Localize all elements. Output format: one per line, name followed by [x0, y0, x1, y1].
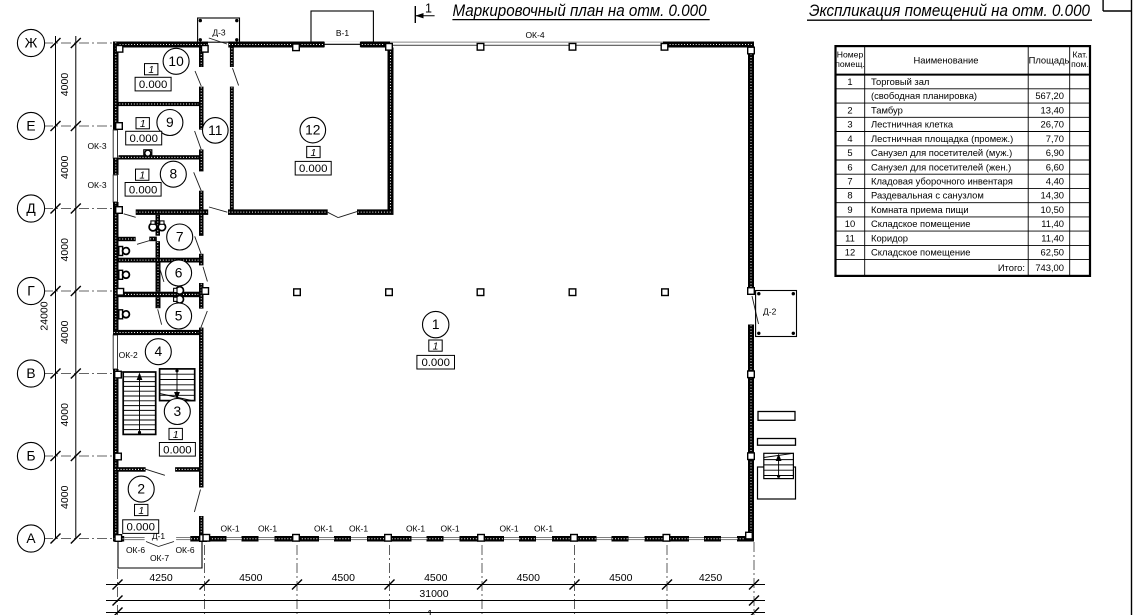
svg-text:ОК-3: ОК-3: [87, 180, 106, 190]
svg-text:Складское помещение: Складское помещение: [871, 247, 970, 258]
svg-text:4000: 4000: [59, 73, 71, 97]
svg-text:Санузел для посетителей (жен.): Санузел для посетителей (жен.): [871, 161, 1011, 172]
svg-text:(свободная планировка): (свободная планировка): [871, 90, 977, 101]
svg-text:3: 3: [173, 404, 181, 419]
svg-text:ОК-1: ОК-1: [314, 524, 333, 534]
svg-text:12: 12: [305, 123, 320, 138]
svg-text:4250: 4250: [149, 572, 173, 584]
svg-text:11: 11: [208, 123, 222, 138]
svg-text:24000: 24000: [39, 301, 51, 330]
svg-text:Е: Е: [26, 119, 35, 134]
svg-text:0.000: 0.000: [139, 79, 168, 91]
svg-text:13,40: 13,40: [1041, 104, 1064, 115]
svg-text:6: 6: [847, 161, 852, 172]
svg-text:11,40: 11,40: [1041, 232, 1064, 243]
svg-text:Лестничная площадка (промеж.): Лестничная площадка (промеж.): [871, 133, 1013, 144]
svg-text:4: 4: [847, 133, 852, 144]
svg-text:6,90: 6,90: [1046, 147, 1064, 158]
svg-text:1: 1: [427, 608, 433, 615]
svg-text:1: 1: [311, 148, 317, 159]
svg-text:0.000: 0.000: [299, 163, 328, 175]
svg-text:ОК-7: ОК-7: [150, 553, 169, 563]
svg-text:ОК-6: ОК-6: [175, 545, 194, 555]
svg-text:26,70: 26,70: [1041, 119, 1064, 130]
svg-text:Ж: Ж: [25, 36, 38, 51]
svg-text:743,00: 743,00: [1035, 262, 1064, 273]
svg-text:Д: Д: [26, 201, 36, 216]
svg-text:4500: 4500: [424, 572, 448, 584]
svg-text:1: 1: [173, 430, 179, 441]
svg-text:Д-3: Д-3: [212, 28, 226, 38]
svg-text:7,70: 7,70: [1046, 133, 1064, 144]
svg-text:Площадь: Площадь: [1029, 55, 1070, 66]
svg-text:Экспликация помещений на отм.: Экспликация помещений на отм. 0.000: [809, 1, 1091, 20]
svg-text:3: 3: [847, 119, 852, 130]
svg-text:0.000: 0.000: [421, 357, 450, 369]
svg-text:1: 1: [140, 119, 146, 130]
svg-text:6: 6: [175, 266, 183, 281]
svg-text:Санузел для посетителей (муж.): Санузел для посетителей (муж.): [871, 147, 1012, 158]
svg-text:8: 8: [847, 190, 852, 201]
svg-text:4500: 4500: [239, 572, 263, 584]
svg-text:0.000: 0.000: [129, 184, 158, 196]
svg-text:Д-2: Д-2: [763, 307, 777, 317]
svg-text:ОК-1: ОК-1: [406, 524, 425, 534]
svg-text:ОК-1: ОК-1: [258, 524, 277, 534]
svg-text:1: 1: [139, 171, 145, 182]
svg-text:4500: 4500: [517, 572, 541, 584]
svg-text:В-1: В-1: [336, 28, 350, 38]
svg-text:7: 7: [176, 230, 184, 245]
svg-text:Б: Б: [26, 449, 35, 464]
svg-text:ОК-4: ОК-4: [525, 30, 544, 40]
svg-text:ОК-1: ОК-1: [440, 524, 459, 534]
svg-text:12: 12: [845, 247, 855, 258]
svg-text:Коридор: Коридор: [871, 232, 908, 243]
svg-text:5: 5: [175, 309, 183, 324]
svg-text:6,60: 6,60: [1046, 161, 1064, 172]
svg-text:Кат.: Кат.: [1073, 50, 1088, 60]
svg-text:10: 10: [168, 54, 184, 69]
svg-text:1: 1: [432, 317, 440, 332]
svg-text:Складское помещение: Складское помещение: [871, 218, 970, 229]
svg-text:ОК-2: ОК-2: [119, 350, 138, 360]
svg-text:10: 10: [845, 218, 855, 229]
svg-text:Раздевальная с санузлом: Раздевальная с санузлом: [871, 190, 984, 201]
svg-text:9: 9: [847, 204, 852, 215]
svg-text:9: 9: [166, 115, 174, 130]
svg-text:Г: Г: [27, 284, 35, 299]
svg-text:4000: 4000: [59, 403, 71, 427]
svg-text:ОК-1: ОК-1: [220, 524, 239, 534]
svg-text:4: 4: [154, 344, 162, 359]
svg-text:4,40: 4,40: [1046, 176, 1064, 187]
svg-text:пом.: пом.: [1071, 59, 1089, 69]
svg-text:1: 1: [433, 342, 439, 353]
svg-text:ОК-3: ОК-3: [87, 141, 106, 151]
svg-text:Маркировочный план на отм. 0.0: Маркировочный план на отм. 0.000: [453, 1, 708, 20]
svg-text:2: 2: [847, 104, 852, 115]
svg-text:Номер: Номер: [837, 50, 864, 60]
svg-text:А: А: [26, 531, 36, 546]
svg-text:1: 1: [138, 506, 144, 517]
svg-text:1: 1: [847, 76, 852, 87]
svg-text:ОК-1: ОК-1: [499, 524, 518, 534]
svg-text:ОК-1: ОК-1: [534, 524, 553, 534]
svg-text:4000: 4000: [59, 485, 71, 509]
svg-text:0.000: 0.000: [129, 133, 158, 145]
svg-text:4000: 4000: [59, 320, 71, 344]
svg-text:2: 2: [137, 482, 145, 497]
svg-text:14,30: 14,30: [1041, 190, 1064, 201]
svg-text:Наименование: Наименование: [914, 55, 979, 66]
svg-text:11,40: 11,40: [1041, 218, 1064, 229]
svg-text:7: 7: [847, 176, 852, 187]
svg-text:ОК-1: ОК-1: [349, 524, 368, 534]
svg-text:Кладовая уборочного инвентаря: Кладовая уборочного инвентаря: [871, 176, 1013, 187]
svg-text:ОК-6: ОК-6: [126, 545, 145, 555]
svg-text:31000: 31000: [419, 588, 448, 600]
svg-text:62,50: 62,50: [1041, 247, 1064, 258]
svg-text:8: 8: [169, 167, 177, 182]
svg-text:Лестничная клетка: Лестничная клетка: [871, 119, 954, 130]
svg-text:4500: 4500: [609, 572, 633, 584]
svg-text:0.000: 0.000: [163, 444, 192, 456]
svg-text:567,20: 567,20: [1035, 90, 1064, 101]
svg-text:4250: 4250: [699, 572, 723, 584]
svg-text:5: 5: [847, 147, 852, 158]
svg-text:0.000: 0.000: [126, 522, 155, 534]
svg-text:В: В: [26, 366, 35, 381]
svg-text:4000: 4000: [59, 238, 71, 262]
svg-text:1: 1: [425, 2, 432, 16]
svg-text:10,50: 10,50: [1041, 204, 1064, 215]
svg-text:Тамбур: Тамбур: [871, 104, 903, 115]
svg-text:Торговый зал: Торговый зал: [871, 76, 929, 87]
svg-text:помещ.: помещ.: [835, 59, 865, 69]
svg-text:Итого:: Итого:: [998, 262, 1025, 273]
svg-text:1: 1: [148, 65, 154, 76]
svg-text:4000: 4000: [59, 155, 71, 179]
svg-text:11: 11: [845, 232, 855, 243]
svg-text:4500: 4500: [332, 572, 356, 584]
svg-text:Комната приема пищи: Комната приема пищи: [871, 204, 969, 215]
